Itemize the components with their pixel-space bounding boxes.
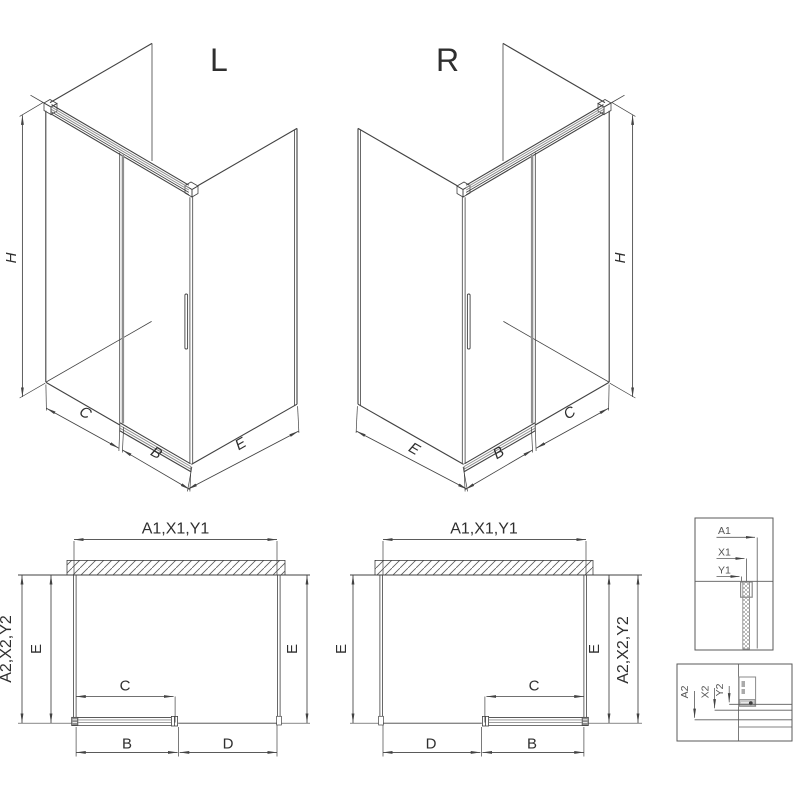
detail-bottom-label-X2: X2 — [700, 685, 712, 698]
plan-left-E-left-label: E — [28, 644, 45, 654]
plan-left-E-right-label: E — [284, 644, 301, 654]
detail-top-label-X1: X1 — [718, 547, 731, 559]
plan-left-width-label: A1,X1,Y1 — [142, 521, 210, 538]
drawing-page: L H C B E R H E B C A1,X1,Y1 A2,X2,Y2 E … — [0, 0, 800, 800]
plan-left-C-label: C — [120, 678, 131, 695]
plan-left-D-label: D — [223, 736, 234, 753]
view-label-left: L — [210, 42, 228, 78]
detail-bottom-label-A2: A2 — [679, 685, 691, 698]
detail-top-label-A1: A1 — [718, 525, 731, 537]
dim-label-H-right: H — [612, 252, 629, 263]
detail-bottom-label-Y2: Y2 — [714, 683, 726, 696]
plan-right-B-label: B — [527, 736, 537, 753]
view-label-right: R — [436, 42, 459, 78]
plan-left-B-label: B — [122, 736, 132, 753]
glass-section-hatch — [743, 582, 750, 649]
plan-right-depth-label: A2,X2,Y2 — [615, 616, 632, 684]
plan-right-E-left-label: E — [333, 644, 350, 654]
plan-left-depth-label: A2,X2,Y2 — [0, 615, 15, 683]
wall-hatch-right-plan — [375, 560, 593, 575]
plan-right-width-label: A1,X1,Y1 — [450, 521, 518, 538]
plan-right-D-label: D — [426, 736, 437, 753]
detail-top-label-Y1: Y1 — [718, 565, 731, 577]
wall-hatch-left-plan — [67, 560, 285, 575]
track-roller-detail — [739, 677, 756, 706]
plan-right-C-label: C — [529, 678, 540, 695]
dim-label-H-left: H — [3, 252, 20, 263]
shower-enclosure-technical-drawing: L H C B E R H E B C A1,X1,Y1 A2,X2,Y2 E … — [0, 0, 800, 800]
plan-right-E-right-label: E — [586, 644, 603, 654]
